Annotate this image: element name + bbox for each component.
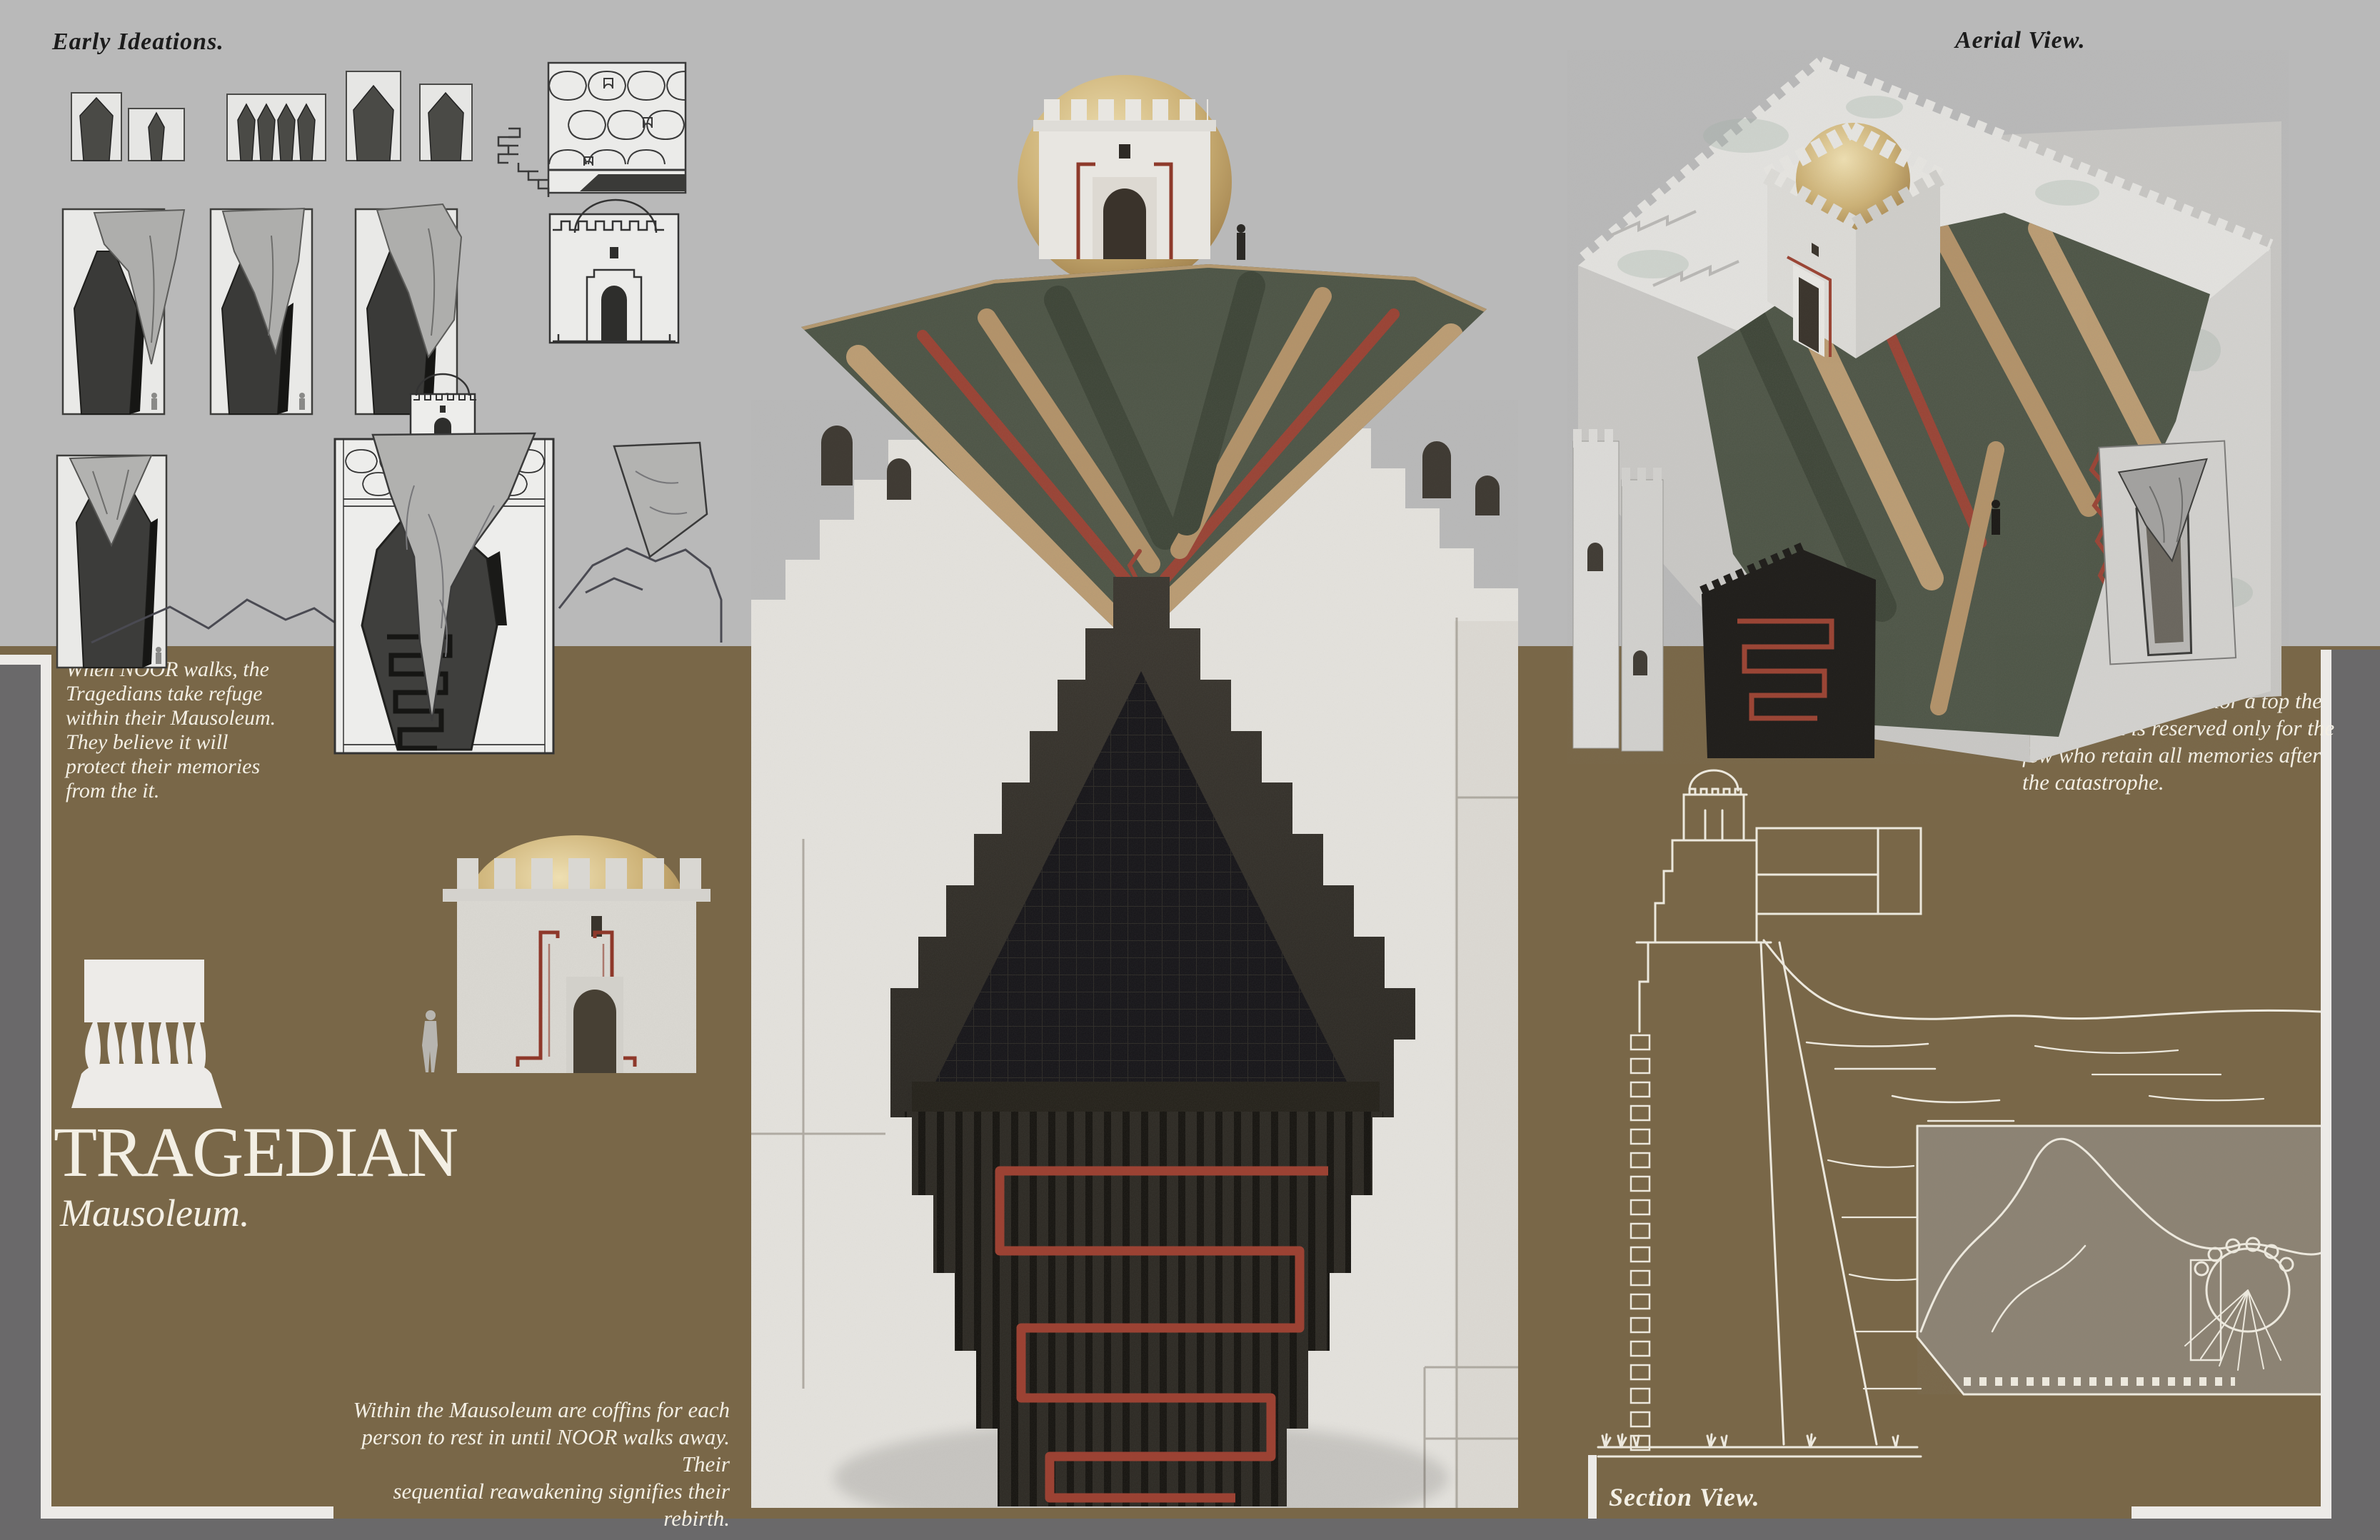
center-render — [751, 50, 1518, 1508]
presentation-board: Early Ideations. Aerial View. Section Vi… — [0, 0, 2380, 1540]
coffins-paragraph: Within the Mausoleum are coffins for eac… — [343, 1396, 730, 1532]
left-margin — [0, 665, 41, 1540]
stair-sketch — [498, 129, 548, 197]
early-ideations-label: Early Ideations. — [52, 29, 224, 56]
small-mausoleum-render — [396, 821, 732, 1092]
page-subtitle: Mausoleum. — [60, 1191, 249, 1235]
right-margin — [2331, 650, 2380, 1540]
tragedian-logo — [70, 955, 224, 1112]
frame-bottom-left — [41, 1506, 333, 1519]
stepped-edge — [1631, 1035, 1650, 1450]
aerial-render — [1567, 50, 2289, 764]
ogee-pattern-study — [548, 63, 686, 193]
facade-sketch — [550, 200, 678, 343]
page-title: TRAGEDIAN — [54, 1115, 457, 1189]
underground-chamber — [1917, 1126, 2321, 1394]
scale-figure — [422, 1010, 438, 1072]
section-view-label: Section View. — [1609, 1482, 1760, 1512]
early-ideation-sketches — [43, 57, 757, 842]
ground-line — [1598, 1434, 1921, 1456]
draped-coffin-study-3 — [57, 456, 166, 668]
arched-door — [573, 990, 616, 1073]
elevation-sketch — [335, 374, 707, 753]
section-drawing — [1592, 760, 2321, 1474]
roof-figure — [1237, 224, 1245, 260]
draped-coffin-studies — [63, 204, 461, 414]
tower-door — [1103, 188, 1146, 259]
frame-bottom-right — [2132, 1506, 2331, 1519]
